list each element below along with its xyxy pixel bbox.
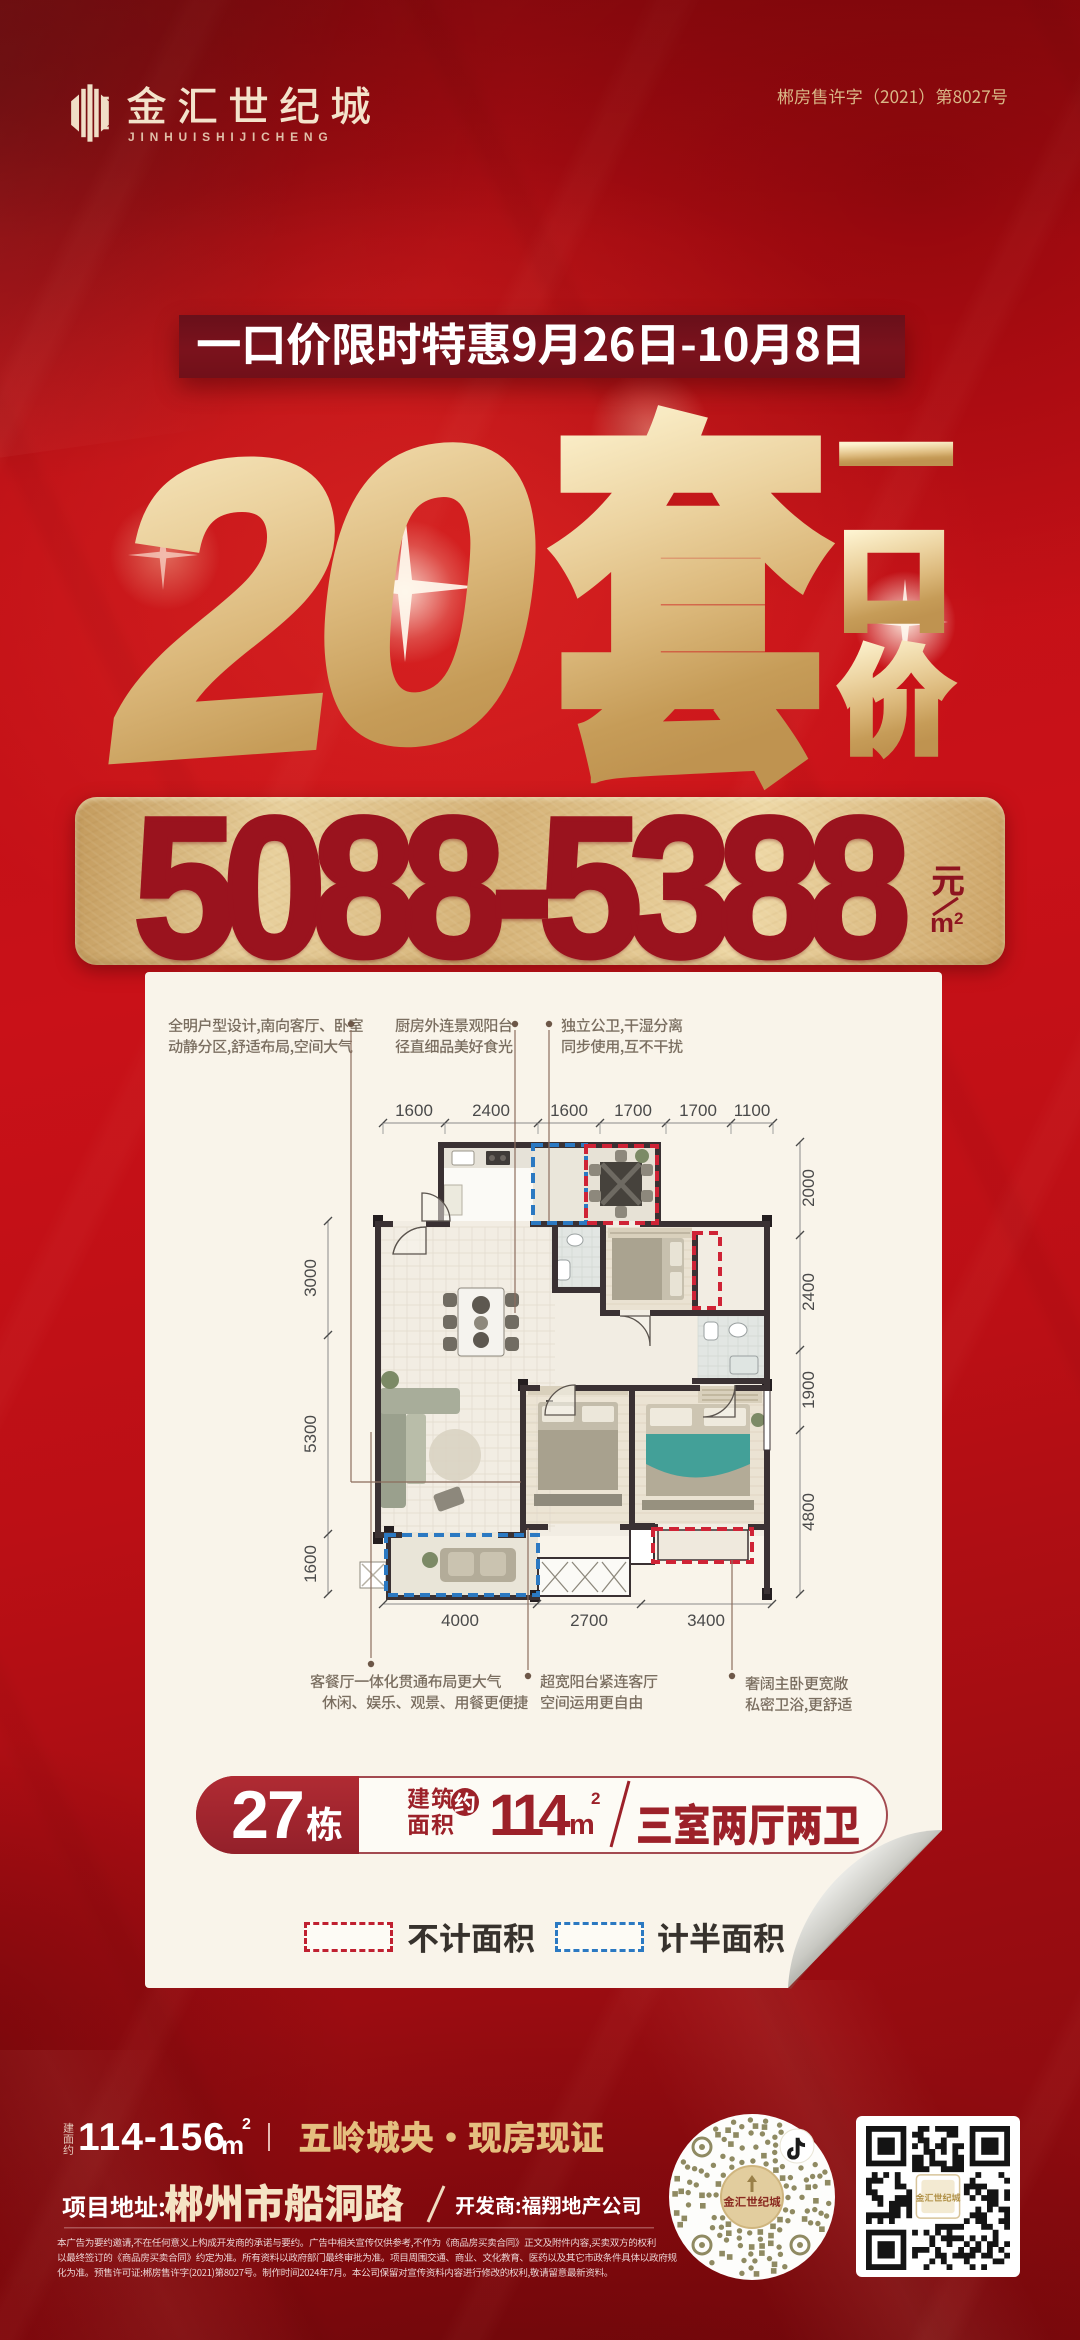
svg-text:2400: 2400 xyxy=(799,1273,818,1311)
svg-text:1600: 1600 xyxy=(395,1101,433,1120)
svg-text:1600: 1600 xyxy=(550,1101,588,1120)
svg-text:2400: 2400 xyxy=(472,1101,510,1120)
svg-text:1700: 1700 xyxy=(679,1101,717,1120)
svg-text:1700: 1700 xyxy=(614,1101,652,1120)
svg-text:3000: 3000 xyxy=(301,1259,320,1297)
svg-text:5300: 5300 xyxy=(301,1415,320,1453)
svg-text:3400: 3400 xyxy=(687,1611,725,1630)
svg-text:1900: 1900 xyxy=(799,1371,818,1409)
svg-text:1600: 1600 xyxy=(301,1545,320,1583)
svg-text:2700: 2700 xyxy=(570,1611,608,1630)
svg-text:4000: 4000 xyxy=(441,1611,479,1630)
svg-text:2000: 2000 xyxy=(799,1169,818,1207)
svg-text:4800: 4800 xyxy=(799,1493,818,1531)
svg-text:1100: 1100 xyxy=(734,1101,771,1120)
